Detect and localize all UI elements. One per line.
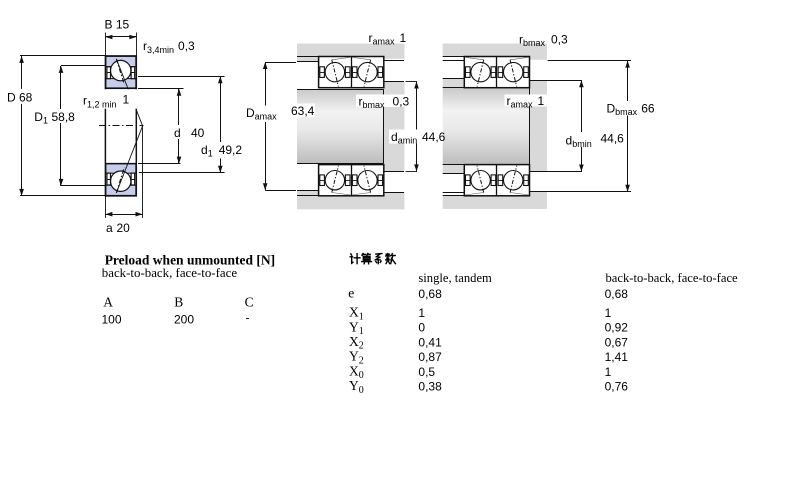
- svg-text:-: -: [246, 311, 250, 325]
- svg-text:1: 1: [605, 306, 612, 320]
- svg-text:1: 1: [123, 93, 130, 107]
- svg-text:A: A: [103, 294, 113, 309]
- svg-text:0,5: 0,5: [418, 365, 435, 379]
- svg-text:a: a: [106, 221, 113, 235]
- svg-text:0,68: 0,68: [418, 287, 442, 301]
- svg-text:e: e: [348, 286, 354, 301]
- svg-text:1,41: 1,41: [605, 350, 629, 364]
- svg-text:40: 40: [191, 126, 205, 140]
- svg-text:single, tandem: single, tandem: [418, 271, 492, 285]
- svg-text:200: 200: [174, 313, 194, 327]
- svg-text:0,76: 0,76: [605, 380, 629, 394]
- svg-text:44,6: 44,6: [422, 130, 446, 144]
- svg-text:d: d: [174, 126, 181, 140]
- svg-text:0,92: 0,92: [605, 321, 629, 335]
- svg-text:B 15: B 15: [105, 18, 130, 32]
- svg-text:d149,2: d149,2: [201, 143, 242, 159]
- svg-text:D158,8: D158,8: [34, 110, 75, 126]
- svg-text:0,41: 0,41: [418, 335, 442, 349]
- svg-text:0,67: 0,67: [605, 335, 629, 349]
- svg-text:0: 0: [418, 321, 425, 335]
- svg-text:B: B: [174, 294, 183, 309]
- svg-text:1: 1: [605, 365, 612, 379]
- svg-text:0,68: 0,68: [605, 287, 629, 301]
- svg-text:0,38: 0,38: [418, 380, 442, 394]
- svg-text:100: 100: [102, 313, 122, 327]
- svg-text:back-to-back, face-to-face: back-to-back, face-to-face: [102, 266, 238, 280]
- svg-text:63,4: 63,4: [291, 104, 315, 118]
- svg-text:20: 20: [117, 221, 131, 235]
- svg-text:44,6: 44,6: [601, 132, 625, 146]
- svg-text:0,87: 0,87: [418, 350, 442, 364]
- svg-text:D 68: D 68: [7, 91, 33, 105]
- svg-text:back-to-back, face-to-face: back-to-back, face-to-face: [606, 271, 739, 285]
- svg-text:C: C: [245, 294, 254, 309]
- svg-text:1: 1: [418, 306, 425, 320]
